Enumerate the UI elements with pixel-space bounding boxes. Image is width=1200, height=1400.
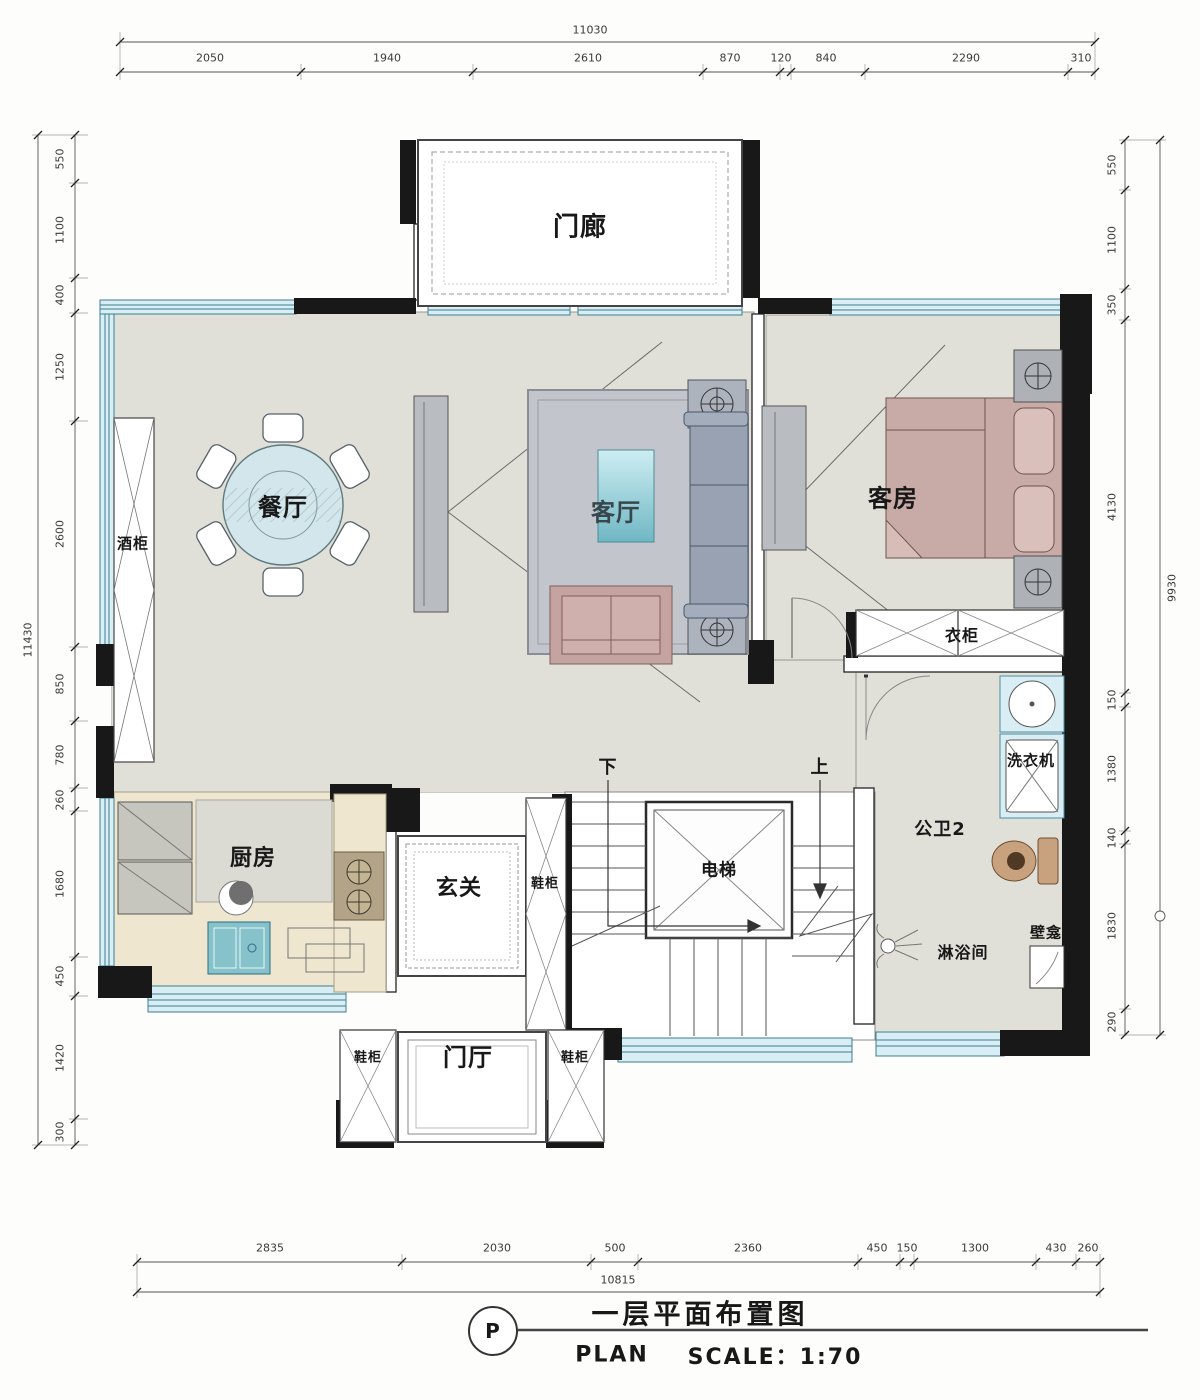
dim-top-seg-7: 310 [1071,52,1092,65]
dim-bottom-seg-6: 1300 [961,1242,989,1255]
dim-right-seg-7: 1830 [1106,912,1119,940]
title-bubble: P [485,1319,501,1343]
dim-left-seg-4: 2600 [54,520,67,548]
dim-bottom-seg-7: 430 [1046,1242,1067,1255]
dim-bottom-seg-4: 450 [867,1242,888,1255]
dim-left-seg-0: 550 [54,149,67,170]
dim-bottom-seg-1: 2030 [483,1242,511,1255]
dim-right-total: 9930 [1166,574,1179,602]
room-label-entry: 玄关 [436,870,482,902]
room-label-guest: 客房 [868,479,918,514]
label-niche: 壁龛 [1030,922,1062,943]
drawing-title: 一层平面布置图 [592,1293,809,1332]
dim-right-seg-6: 140 [1106,828,1119,849]
dim-top-seg-2: 2610 [574,52,602,65]
label-stair-up: 上 [811,753,830,779]
dim-bottom-seg-2: 500 [605,1242,626,1255]
dim-bottom-seg-3: 2360 [734,1242,762,1255]
dim-left-seg-5: 850 [54,674,67,695]
dim-left-seg-6: 780 [54,745,67,766]
dim-top-seg-4: 120 [771,52,792,65]
label-shoe-cabinet-right: 鞋柜 [561,1047,589,1066]
dim-left-total: 11430 [22,623,35,658]
dim-bottom-seg-8: 260 [1078,1242,1099,1255]
dim-right-seg-0: 550 [1106,155,1119,176]
room-label-living: 客厅 [591,493,641,528]
label-shower: 淋浴间 [937,939,988,963]
dim-right-seg-2: 350 [1106,295,1119,316]
label-stair-down: 下 [599,753,618,779]
dim-left-seg-11: 300 [54,1122,67,1143]
dim-bottom-seg-5: 150 [897,1242,918,1255]
dim-top-seg-1: 1940 [373,52,401,65]
room-label-dining: 餐厅 [258,488,308,523]
dim-bottom-seg-0: 2835 [256,1242,284,1255]
dim-right-seg-1: 1100 [1106,226,1119,254]
label-wine-cabinet: 酒柜 [117,533,149,554]
label-shoe-cabinet-entry: 鞋柜 [531,873,559,892]
dim-left-seg-10: 1420 [54,1044,67,1072]
room-label-porch: 门廊 [553,207,607,244]
entry-decor [398,836,526,976]
room-label-kitchen: 厨房 [230,840,276,872]
label-shoe-cabinet-left: 鞋柜 [354,1047,382,1066]
drawing-title-en: PLAN [575,1343,649,1368]
dim-top-total: 11030 [573,24,608,37]
wine-cabinet [114,418,154,762]
room-label-elevator: 电梯 [701,856,737,881]
dim-left-seg-3: 1250 [54,353,67,381]
dim-top-seg-6: 2290 [952,52,980,65]
room-label-bath2: 公卫2 [914,815,966,841]
dim-top-seg-0: 2050 [196,52,224,65]
dim-right-seg-5: 1380 [1106,755,1119,783]
dim-right-seg-3: 4130 [1106,493,1119,521]
dim-left-seg-9: 450 [54,966,67,987]
dim-right-seg-4: 150 [1106,690,1119,711]
drawing-scale: SCALE：1:70 [688,1339,863,1371]
label-washer: 洗衣机 [1007,750,1055,771]
dim-top-seg-3: 870 [720,52,741,65]
floor-plan-canvas: 11030 2050 1940 2610 870 120 840 2290 31… [0,0,1200,1400]
dim-bottom-total: 10815 [601,1274,636,1287]
room-label-foyer: 门厅 [443,1038,493,1073]
dim-left-seg-7: 260 [54,790,67,811]
dim-left-seg-2: 400 [54,285,67,306]
dim-right-seg-8: 290 [1106,1012,1119,1033]
dim-top-seg-5: 840 [816,52,837,65]
label-wardrobe: 衣柜 [945,622,979,646]
dim-left-seg-1: 1100 [54,216,67,244]
dim-left-seg-8: 1680 [54,870,67,898]
